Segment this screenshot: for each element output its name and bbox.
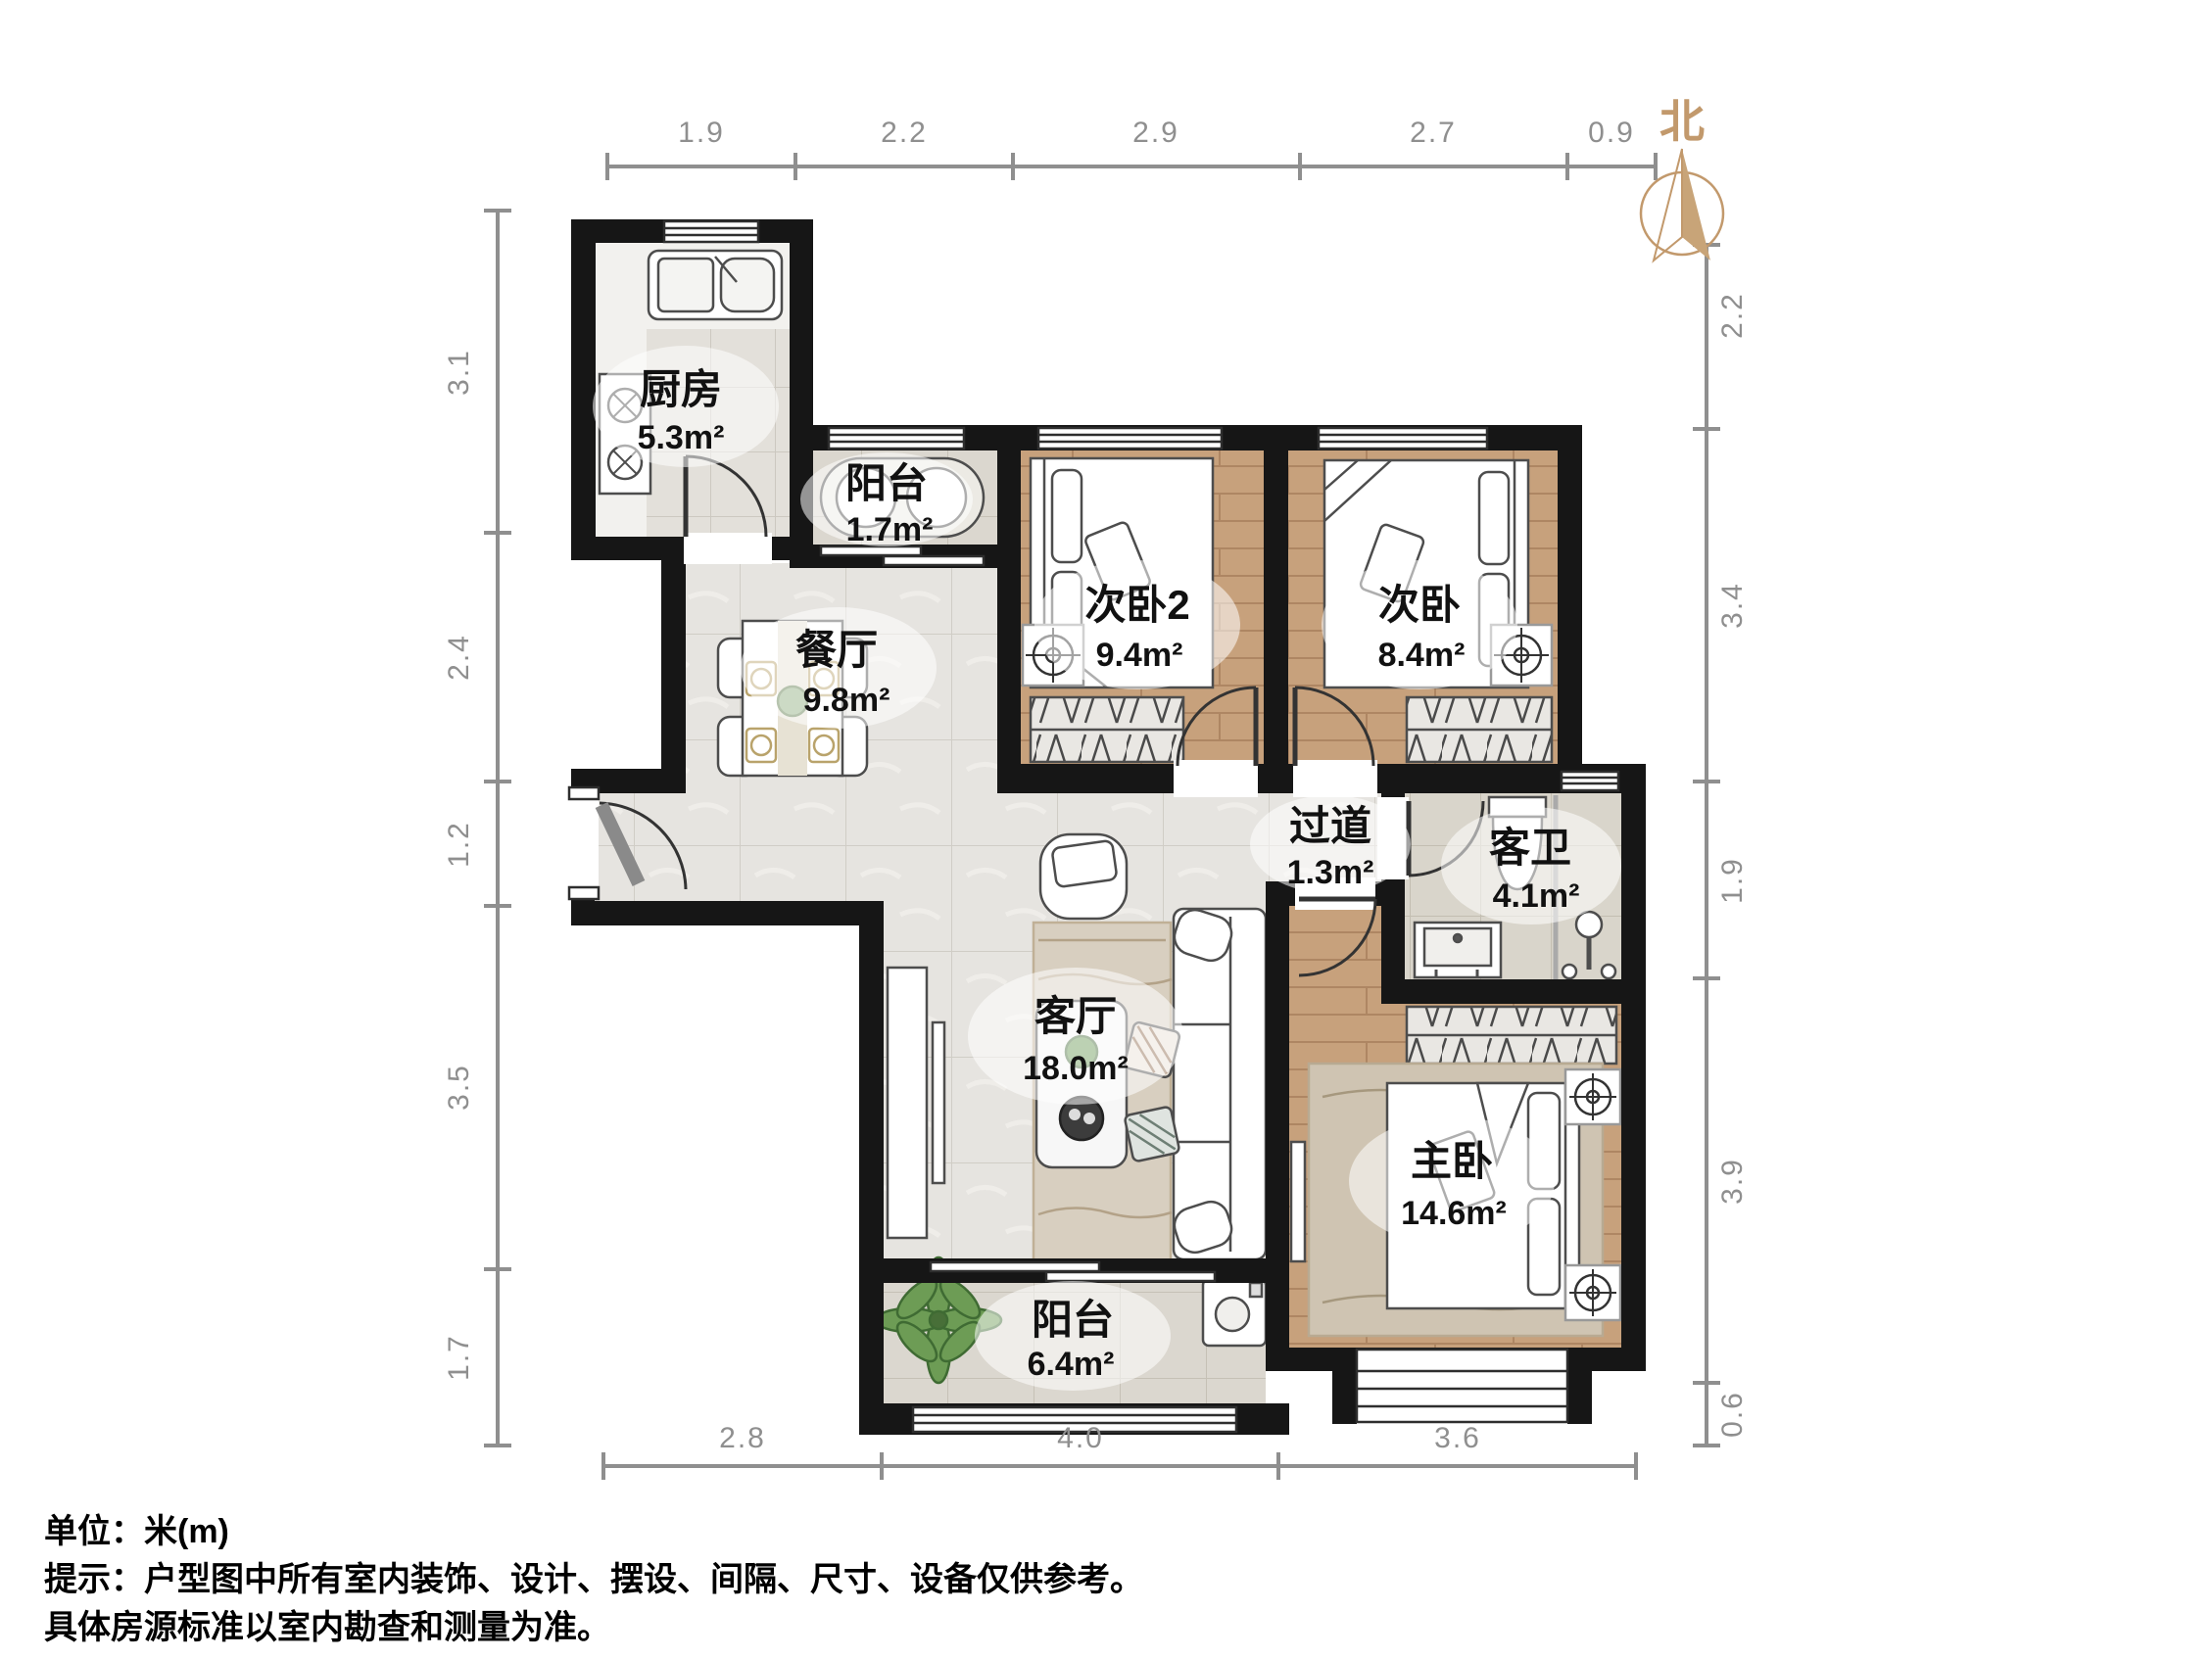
dim-bottom-2: 4.0 bbox=[1057, 1422, 1104, 1454]
living-tv-console bbox=[888, 968, 927, 1238]
dim-left-1: 3.1 bbox=[443, 349, 475, 396]
balcony-south-area: 6.4m² bbox=[1028, 1346, 1115, 1383]
compass-needle-west bbox=[1654, 149, 1682, 261]
kitchen-door-gap bbox=[684, 533, 772, 564]
balcony-south-label: 阳台 bbox=[1032, 1297, 1114, 1343]
bedroom2-area: 9.4m² bbox=[1096, 637, 1183, 674]
dim-top bbox=[607, 153, 1656, 180]
living-armchair bbox=[1040, 834, 1127, 919]
dining-area: 9.8m² bbox=[803, 682, 890, 719]
kitchen-label: 厨房 bbox=[640, 366, 722, 412]
dining-label: 餐厅 bbox=[795, 627, 878, 673]
master-bay-window bbox=[1357, 1350, 1567, 1422]
dim-top-3: 2.9 bbox=[1132, 117, 1179, 149]
dim-bottom-1: 2.8 bbox=[719, 1422, 766, 1454]
bedroom2-window bbox=[1038, 428, 1222, 449]
balcony-north-area: 1.7m² bbox=[846, 511, 934, 548]
living-tv bbox=[933, 1022, 944, 1183]
dim-right-5: 0.6 bbox=[1716, 1391, 1749, 1438]
balcony-north-window bbox=[829, 428, 964, 449]
dim-left-2: 2.4 bbox=[443, 634, 475, 681]
bathroom-sink bbox=[1415, 923, 1501, 977]
footer-disclaimer-2: 具体房源标准以室内勘查和测量为准。 bbox=[44, 1604, 1143, 1652]
dim-right-2: 3.4 bbox=[1716, 582, 1749, 629]
hallway-area: 1.3m² bbox=[1287, 854, 1374, 891]
floorplan-page: 厨房 5.3m² 阳台 1.7m² 次卧2 9.4m² 次卧 8.4m² 餐厅 … bbox=[0, 0, 2212, 1659]
dim-top-1: 1.9 bbox=[678, 117, 725, 149]
dim-left-5: 1.7 bbox=[443, 1334, 475, 1381]
bathroom-window bbox=[1562, 772, 1618, 790]
floorplan-drawing: 厨房 5.3m² 阳台 1.7m² 次卧2 9.4m² 次卧 8.4m² 餐厅 … bbox=[0, 0, 2212, 1659]
dim-top-4: 2.7 bbox=[1410, 117, 1457, 149]
dim-left-4: 3.5 bbox=[443, 1064, 475, 1111]
bedroom-window bbox=[1319, 428, 1487, 449]
bedroom2-door-gap bbox=[1174, 760, 1258, 797]
kitchen-area: 5.3m² bbox=[638, 419, 725, 456]
dim-right bbox=[1693, 245, 1720, 1446]
dim-top-2: 2.2 bbox=[881, 117, 928, 149]
footer-unit: 单位：米(m) bbox=[44, 1508, 1143, 1556]
master-label: 主卧 bbox=[1411, 1138, 1493, 1184]
bathroom-label: 客卫 bbox=[1489, 825, 1571, 871]
bedroom-door-gap bbox=[1293, 760, 1377, 797]
dim-left bbox=[484, 211, 511, 1446]
balcony-north-label: 阳台 bbox=[845, 460, 928, 506]
footer-disclaimer-1: 提示：户型图中所有室内装饰、设计、摆设、间隔、尺寸、设备仅供参考。 bbox=[44, 1556, 1143, 1604]
bedroom-area: 8.4m² bbox=[1378, 637, 1466, 674]
dim-top-5: 0.9 bbox=[1588, 117, 1635, 149]
footer-notes: 单位：米(m) 提示：户型图中所有室内装饰、设计、摆设、间隔、尺寸、设备仅供参考… bbox=[44, 1508, 1143, 1652]
master-wall-tv bbox=[1291, 1142, 1305, 1261]
dim-right-4: 3.9 bbox=[1716, 1158, 1749, 1205]
dim-bottom bbox=[603, 1452, 1636, 1480]
bathroom-area: 4.1m² bbox=[1493, 877, 1580, 915]
bedroom-label: 次卧 bbox=[1378, 582, 1461, 628]
washing-machine bbox=[1203, 1279, 1266, 1346]
dim-right-1: 2.2 bbox=[1716, 292, 1749, 339]
north-label: 北 bbox=[1659, 96, 1705, 147]
kitchen-sink bbox=[649, 251, 782, 319]
compass: 北 bbox=[1641, 96, 1723, 261]
kitchen-window bbox=[664, 221, 758, 242]
hallway-label: 过道 bbox=[1289, 803, 1371, 849]
bedroom2-label: 次卧2 bbox=[1084, 582, 1189, 628]
living-label: 客厅 bbox=[1034, 993, 1117, 1039]
master-area: 14.6m² bbox=[1401, 1195, 1507, 1232]
living-area: 18.0m² bbox=[1023, 1050, 1129, 1087]
entry-door-gap bbox=[567, 797, 599, 891]
living-sofa bbox=[1170, 905, 1266, 1259]
dim-bottom-3: 3.6 bbox=[1434, 1422, 1481, 1454]
dim-right-3: 1.9 bbox=[1716, 857, 1749, 904]
dim-left-3: 1.2 bbox=[443, 821, 475, 868]
